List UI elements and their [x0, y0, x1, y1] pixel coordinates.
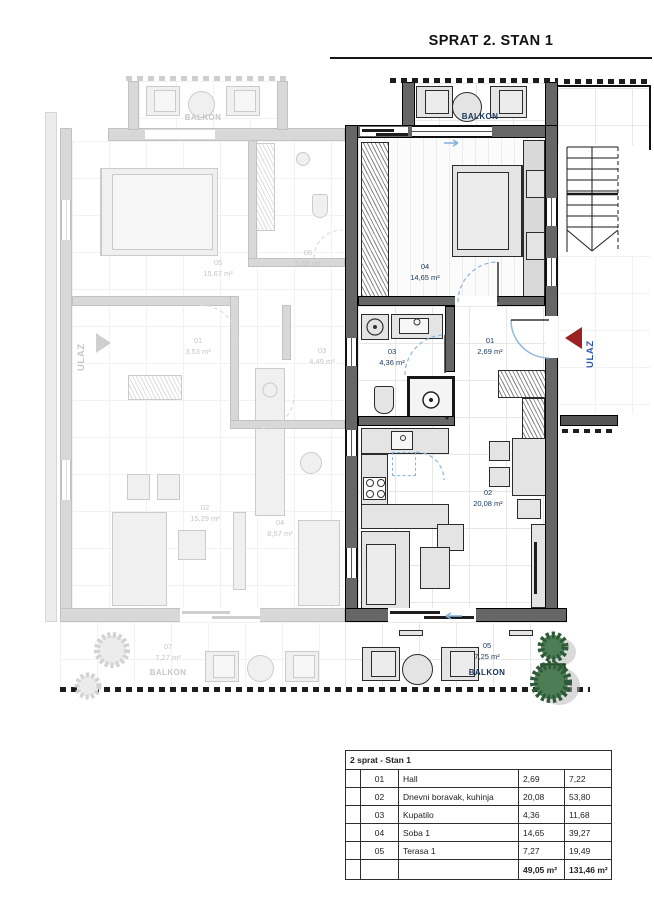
staircase	[567, 147, 618, 252]
title-underline	[330, 57, 652, 59]
table-row: 04Soba 114,6539,27	[346, 824, 612, 842]
room-label-faded-balkon: 077,27 m²	[138, 642, 198, 664]
stove	[363, 477, 386, 500]
balkon-label-faded-bottom: BALKON	[133, 667, 203, 679]
room-label-faded-soba: 0515,67 m²	[188, 258, 248, 280]
room-label-soba: 0414,65 m²	[395, 262, 455, 284]
terrace-table	[402, 654, 433, 685]
room-label-dnevni: 0220,08 m²	[456, 488, 520, 510]
table-header: 2 sprat - Stan 1	[346, 751, 612, 770]
ulaz-label-faded: ULAZ	[76, 327, 87, 371]
table-row: 05Terasa 17,2719,49	[346, 842, 612, 860]
room-label-kupatilo: 034,36 m²	[364, 347, 420, 369]
total-area: 49,05 m²	[519, 860, 565, 880]
hall-closet	[498, 370, 546, 398]
page-title: SPRAT 2. STAN 1	[330, 33, 652, 49]
terrace-armchair	[285, 651, 319, 682]
coffee-table	[420, 547, 450, 589]
sofa	[361, 531, 410, 610]
hall-closet	[128, 375, 182, 400]
dining-chair	[489, 467, 510, 487]
terrace-table	[247, 655, 274, 682]
room-label-faded-ostava: 034,49 m²	[292, 346, 352, 368]
dining-chair	[127, 474, 150, 500]
wardrobe	[361, 142, 389, 302]
terrace-armchair	[362, 647, 400, 681]
room-label-faded-hall: 013,53 m²	[168, 336, 228, 358]
room-label-terasa: 057,25 m²	[455, 641, 519, 663]
room-label-faded-soba2: 048,57 m²	[250, 518, 310, 540]
balkon-label-faded-top: BALKON	[168, 112, 238, 124]
room-label-faded-dnevni: 0215,29 m²	[175, 503, 235, 525]
total-structure-area: 131,46 m²	[565, 860, 612, 880]
bed	[452, 165, 524, 257]
ulaz-arrow-icon-faded	[96, 333, 111, 353]
kitchen-counter	[255, 368, 285, 516]
plant	[300, 452, 322, 474]
balkon-label-bottom: BALKON	[450, 667, 524, 679]
table-row: 02Dnevni boravak, kuhinja20,0853,80	[346, 788, 612, 806]
kitchen-sink	[391, 431, 413, 450]
coffee-table	[178, 530, 206, 560]
table-row: 03Kupatilo4,3611,68	[346, 806, 612, 824]
column-base	[509, 630, 533, 636]
table-header-row: 2 sprat - Stan 1	[346, 751, 612, 770]
sofa	[112, 512, 167, 606]
washing-machine	[361, 314, 389, 340]
tv	[534, 542, 537, 594]
ulaz-label: ULAZ	[585, 320, 596, 368]
room-label-hall: 012,69 m²	[460, 336, 520, 358]
dining-chair	[517, 499, 541, 519]
sink	[296, 152, 310, 166]
toilet	[374, 386, 394, 414]
area-table: 2 sprat - Stan 1 01Hall2,697,22 02Dnevni…	[345, 750, 612, 880]
closet-strip	[523, 140, 545, 300]
toilet	[312, 194, 328, 218]
nightstand	[526, 170, 545, 198]
terrace-armchair	[205, 651, 239, 682]
dining-chair	[489, 441, 510, 461]
dining-chair	[157, 474, 180, 500]
floor-plan-page: ULAZ ULAZ 0414,65 m² 012,69 m² 034,36 m²…	[0, 0, 654, 922]
hall-closet	[522, 398, 545, 440]
balkon-label-top: BALKON	[442, 111, 518, 123]
bed	[100, 168, 218, 256]
column-base	[399, 630, 423, 636]
nightstand	[526, 232, 545, 260]
island-outline	[392, 452, 416, 476]
bath-sink	[399, 318, 429, 334]
kitchen-counter	[361, 504, 449, 529]
room-label-faded-kupatilo: 065,09 m²	[278, 248, 338, 270]
table-total-row: 49,05 m²131,46 m²	[346, 860, 612, 880]
table-row: 01Hall2,697,22	[346, 770, 612, 788]
ulaz-arrow-icon	[565, 327, 582, 349]
